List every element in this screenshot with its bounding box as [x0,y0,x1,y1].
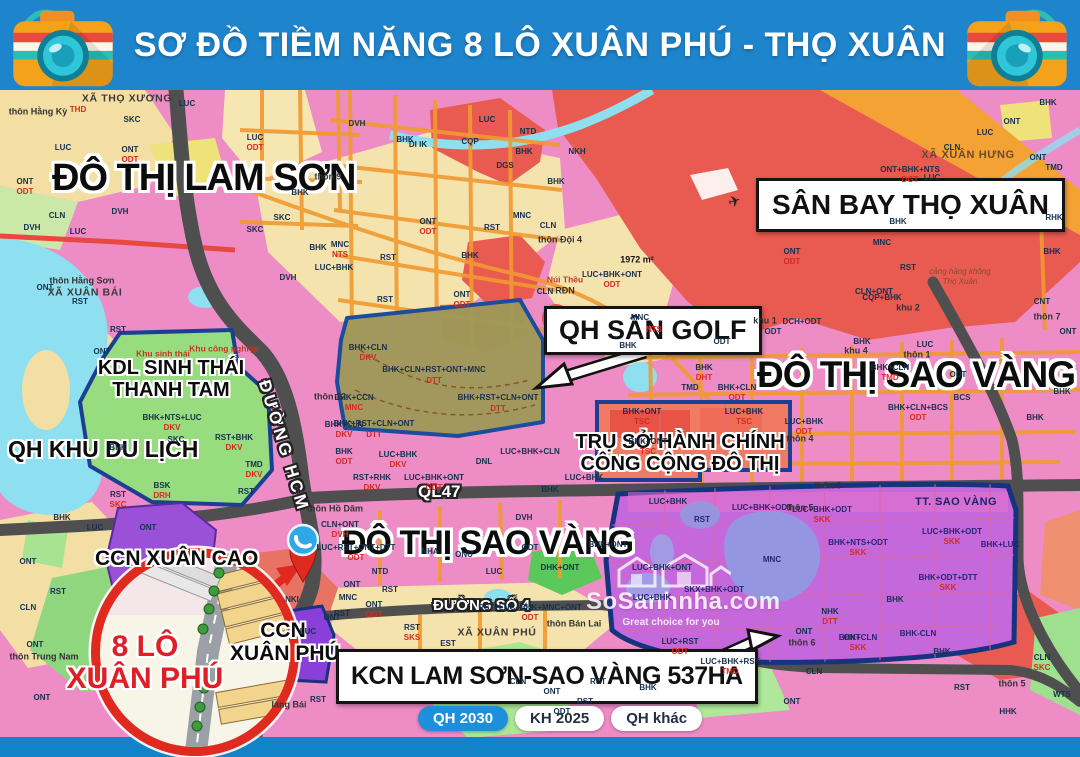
zoning-map: ✈ [0,90,1080,757]
camera-icon [960,6,1072,92]
page-title: SƠ ĐỒ TIỀM NĂNG 8 LÔ XUÂN PHÚ - THỌ XUÂN [134,26,946,65]
title-banner: SƠ ĐỒ TIỀM NĂNG 8 LÔ XUÂN PHÚ - THỌ XUÂN [0,0,1080,90]
legend-qh-2030[interactable]: QH 2030 [418,706,508,731]
camera-icon [8,6,120,92]
legend: QH 2030 KH 2025 QH khác [418,706,702,731]
legend-kh-2025[interactable]: KH 2025 [515,706,604,731]
screenshot-root: ✈ [0,0,1080,757]
golf-zone [337,300,543,436]
admin-center-zone [597,402,790,480]
tt-sao-vang-zone [606,484,1016,662]
legend-qh-khac[interactable]: QH khác [611,706,702,731]
